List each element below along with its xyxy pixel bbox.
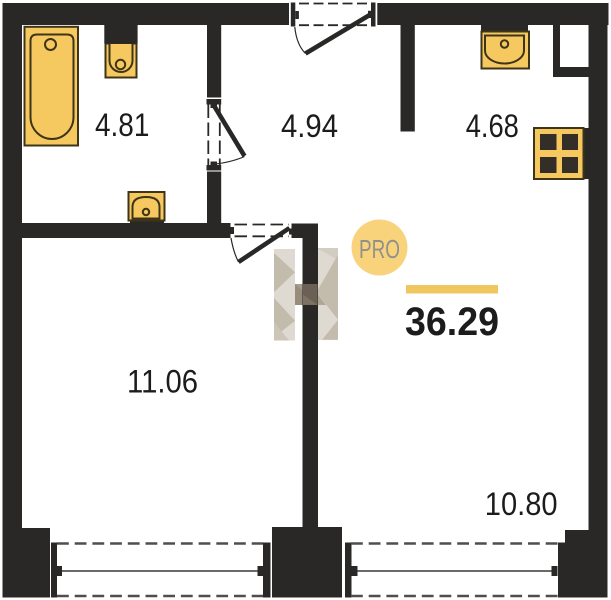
svg-text:4.81: 4.81 (95, 107, 149, 143)
svg-text:11.06: 11.06 (127, 363, 198, 399)
svg-text:10.80: 10.80 (485, 486, 558, 522)
svg-text:4.68: 4.68 (466, 108, 519, 144)
svg-text:4.94: 4.94 (281, 108, 338, 144)
svg-text:36.29: 36.29 (405, 300, 499, 344)
svg-text:PRO: PRO (359, 234, 400, 264)
